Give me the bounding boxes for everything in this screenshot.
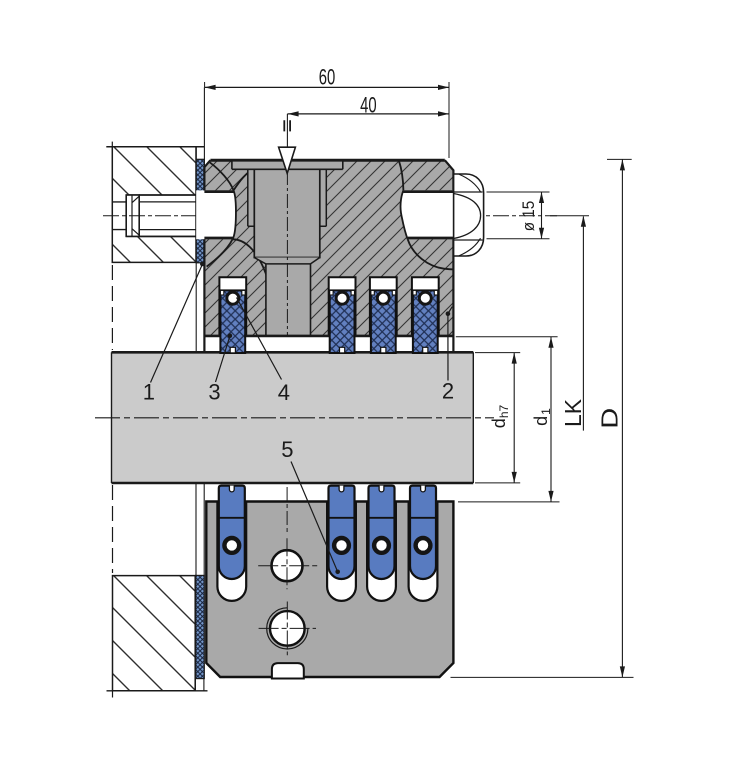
svg-text:2: 2 bbox=[442, 379, 454, 404]
svg-text:3: 3 bbox=[208, 379, 220, 404]
svg-text:ø 15: ø 15 bbox=[519, 201, 538, 232]
svg-text:5: 5 bbox=[281, 437, 293, 462]
svg-text:60: 60 bbox=[319, 65, 336, 90]
svg-text:D: D bbox=[597, 408, 623, 429]
svg-text:4: 4 bbox=[278, 380, 290, 405]
svg-text:LK: LK bbox=[560, 398, 586, 427]
svg-text:40: 40 bbox=[360, 93, 377, 118]
svg-text:1: 1 bbox=[143, 380, 155, 405]
